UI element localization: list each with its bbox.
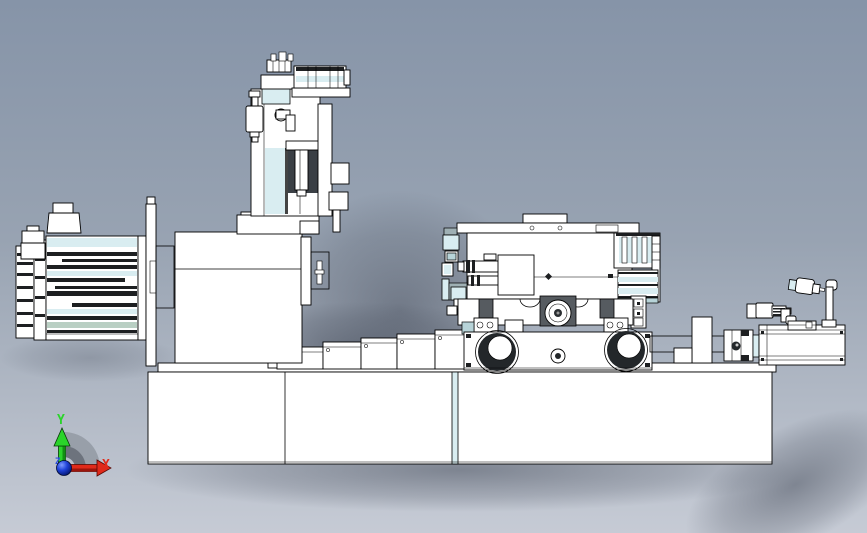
axis-x-label: X xyxy=(102,458,110,473)
carriage-workhead xyxy=(442,214,660,374)
machine-assembly-drawing: Z Y X xyxy=(0,0,867,533)
tool-column xyxy=(237,52,350,234)
tailstock-drive xyxy=(650,277,845,365)
cad-3d-viewport[interactable]: Z Y X xyxy=(0,0,867,533)
machine-base xyxy=(148,363,776,464)
origin-ball xyxy=(57,461,72,476)
sensor-fitting xyxy=(788,277,826,297)
origin-triad: Z Y X xyxy=(54,413,111,476)
elbow-pipe-fitting xyxy=(822,280,837,327)
axis-y-label: Y xyxy=(57,413,65,428)
